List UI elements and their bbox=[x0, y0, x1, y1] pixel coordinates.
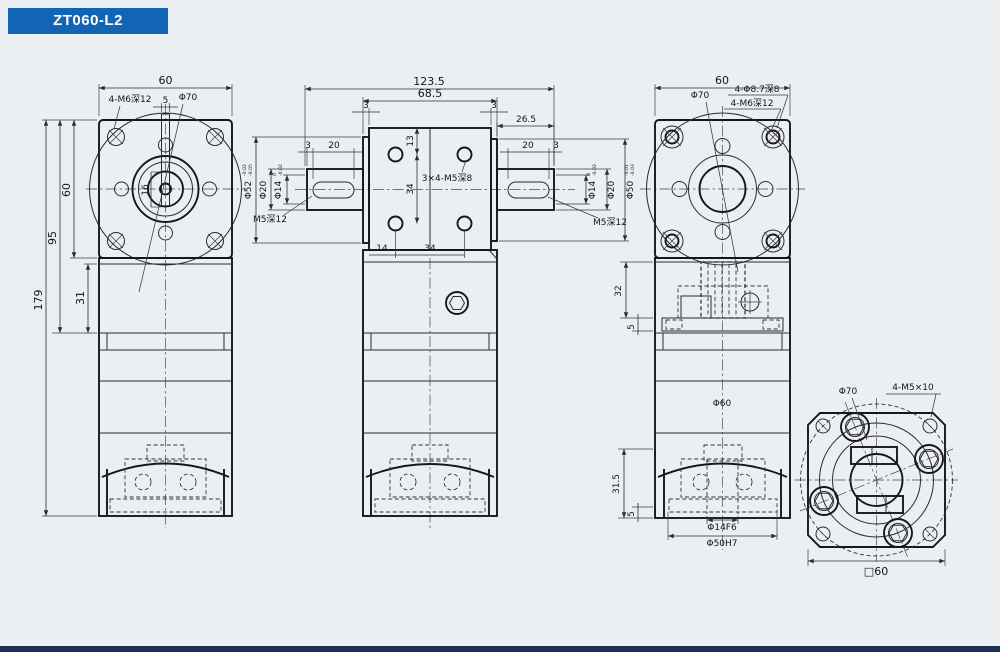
dim-plate-height: 5 bbox=[627, 324, 637, 330]
cad-drawing: 60 4-M6深12 Φ70 5 16 179 95 60 31 bbox=[0, 0, 1000, 652]
dim-key-len-left: 20 bbox=[328, 141, 340, 151]
dim-side-right-ext: 26.5 bbox=[516, 115, 536, 125]
hex-plug bbox=[446, 292, 468, 314]
dim-front-key-width: 5 bbox=[163, 96, 169, 106]
label-back-flange-dia: Φ70 bbox=[691, 91, 710, 101]
dim-front-width: 60 bbox=[159, 74, 173, 87]
dia-left-boss-tol-dn: -0.05 bbox=[248, 164, 254, 176]
label-output-flange-dia: Φ70 bbox=[839, 387, 858, 397]
dim-back-width: 60 bbox=[715, 74, 729, 87]
dim-key-offset-right: 3 bbox=[553, 141, 559, 151]
dia-left-boss: Φ52 bbox=[244, 181, 254, 200]
dia-right-end-tol-dn: -0.02 bbox=[592, 164, 598, 176]
dia-left-shaft: Φ20 bbox=[259, 180, 269, 199]
back-view: 60 Φ70 4-Φ8.7深8 4-M6深12 bbox=[612, 74, 805, 550]
dim-gear-height: 32 bbox=[614, 285, 624, 296]
output-view: Φ70 4-M5×10 □60 bbox=[795, 383, 958, 578]
dia-right-end: Φ14 bbox=[588, 180, 598, 199]
side-view: 123.5 68.5 3 3 26.5 3 20 20 3 13 bbox=[242, 75, 636, 528]
dim-front-height-95: 95 bbox=[46, 231, 59, 245]
dim-hole-left: 14 bbox=[376, 244, 388, 254]
label-spigot-fit: Φ50H7 bbox=[706, 539, 737, 549]
dia-left-boss-tol-up: -0.02 bbox=[242, 164, 248, 176]
dim-base-height: 5 bbox=[627, 511, 637, 517]
label-back-cbore: 4-Φ8.7深8 bbox=[734, 84, 779, 95]
dia-right-boss-tol-dn: -0.03 bbox=[630, 164, 636, 176]
label-output-screws: 4-M5×10 bbox=[892, 383, 934, 393]
label-left-thread: M5深12 bbox=[253, 214, 287, 225]
dim-side-plate-left: 3 bbox=[363, 101, 369, 111]
label-front-corner-holes: 4-M6深12 bbox=[109, 94, 152, 105]
dim-hole-pitch-v: 34 bbox=[406, 183, 416, 195]
dim-key-offset-left: 3 bbox=[305, 141, 311, 151]
dim-front-key-len: 16 bbox=[141, 184, 151, 196]
dia-right-shaft: Φ20 bbox=[607, 180, 617, 199]
dim-lower-height: 31.5 bbox=[612, 474, 622, 494]
label-front-flange-dia: Φ70 bbox=[179, 93, 198, 103]
dim-front-height-31: 31 bbox=[74, 291, 87, 305]
dia-left-end-tol-dn: -0.02 bbox=[278, 164, 284, 176]
dim-output-square: □60 bbox=[864, 565, 888, 578]
drawing-sheet: ZT060-L2 bbox=[0, 0, 1000, 652]
dim-hole-pitch-h: 34 bbox=[424, 244, 436, 254]
dim-side-housing: 68.5 bbox=[418, 87, 443, 100]
footer-accent-bar bbox=[0, 646, 1000, 652]
dim-side-plate-right: 3 bbox=[491, 101, 497, 111]
label-body-dia: Φ60 bbox=[713, 399, 732, 409]
dim-front-height-179: 179 bbox=[32, 290, 45, 311]
dia-left-end: Φ14 bbox=[274, 180, 284, 199]
dia-right-boss-tol-up: -0.01 bbox=[624, 164, 630, 176]
label-right-thread: M5深12 bbox=[593, 217, 627, 228]
label-face-holes: 3×4-M5深8 bbox=[422, 173, 473, 184]
label-back-thread: 4-M6深12 bbox=[731, 98, 774, 109]
dia-right-end-tol-up: 0 bbox=[586, 173, 592, 176]
label-bore-fit: Φ14F6 bbox=[707, 523, 737, 533]
dia-right-boss: Φ50 bbox=[626, 180, 636, 199]
front-view: 60 4-M6深12 Φ70 5 16 179 95 60 31 bbox=[32, 74, 246, 528]
dim-front-height-60: 60 bbox=[60, 183, 73, 197]
back-hidden-clamp bbox=[669, 445, 777, 514]
set-screw bbox=[738, 290, 762, 314]
dim-key-len-right: 20 bbox=[522, 141, 534, 151]
dim-hole-top: 13 bbox=[406, 135, 416, 146]
dia-left-end-tol-up: 0 bbox=[272, 173, 278, 176]
